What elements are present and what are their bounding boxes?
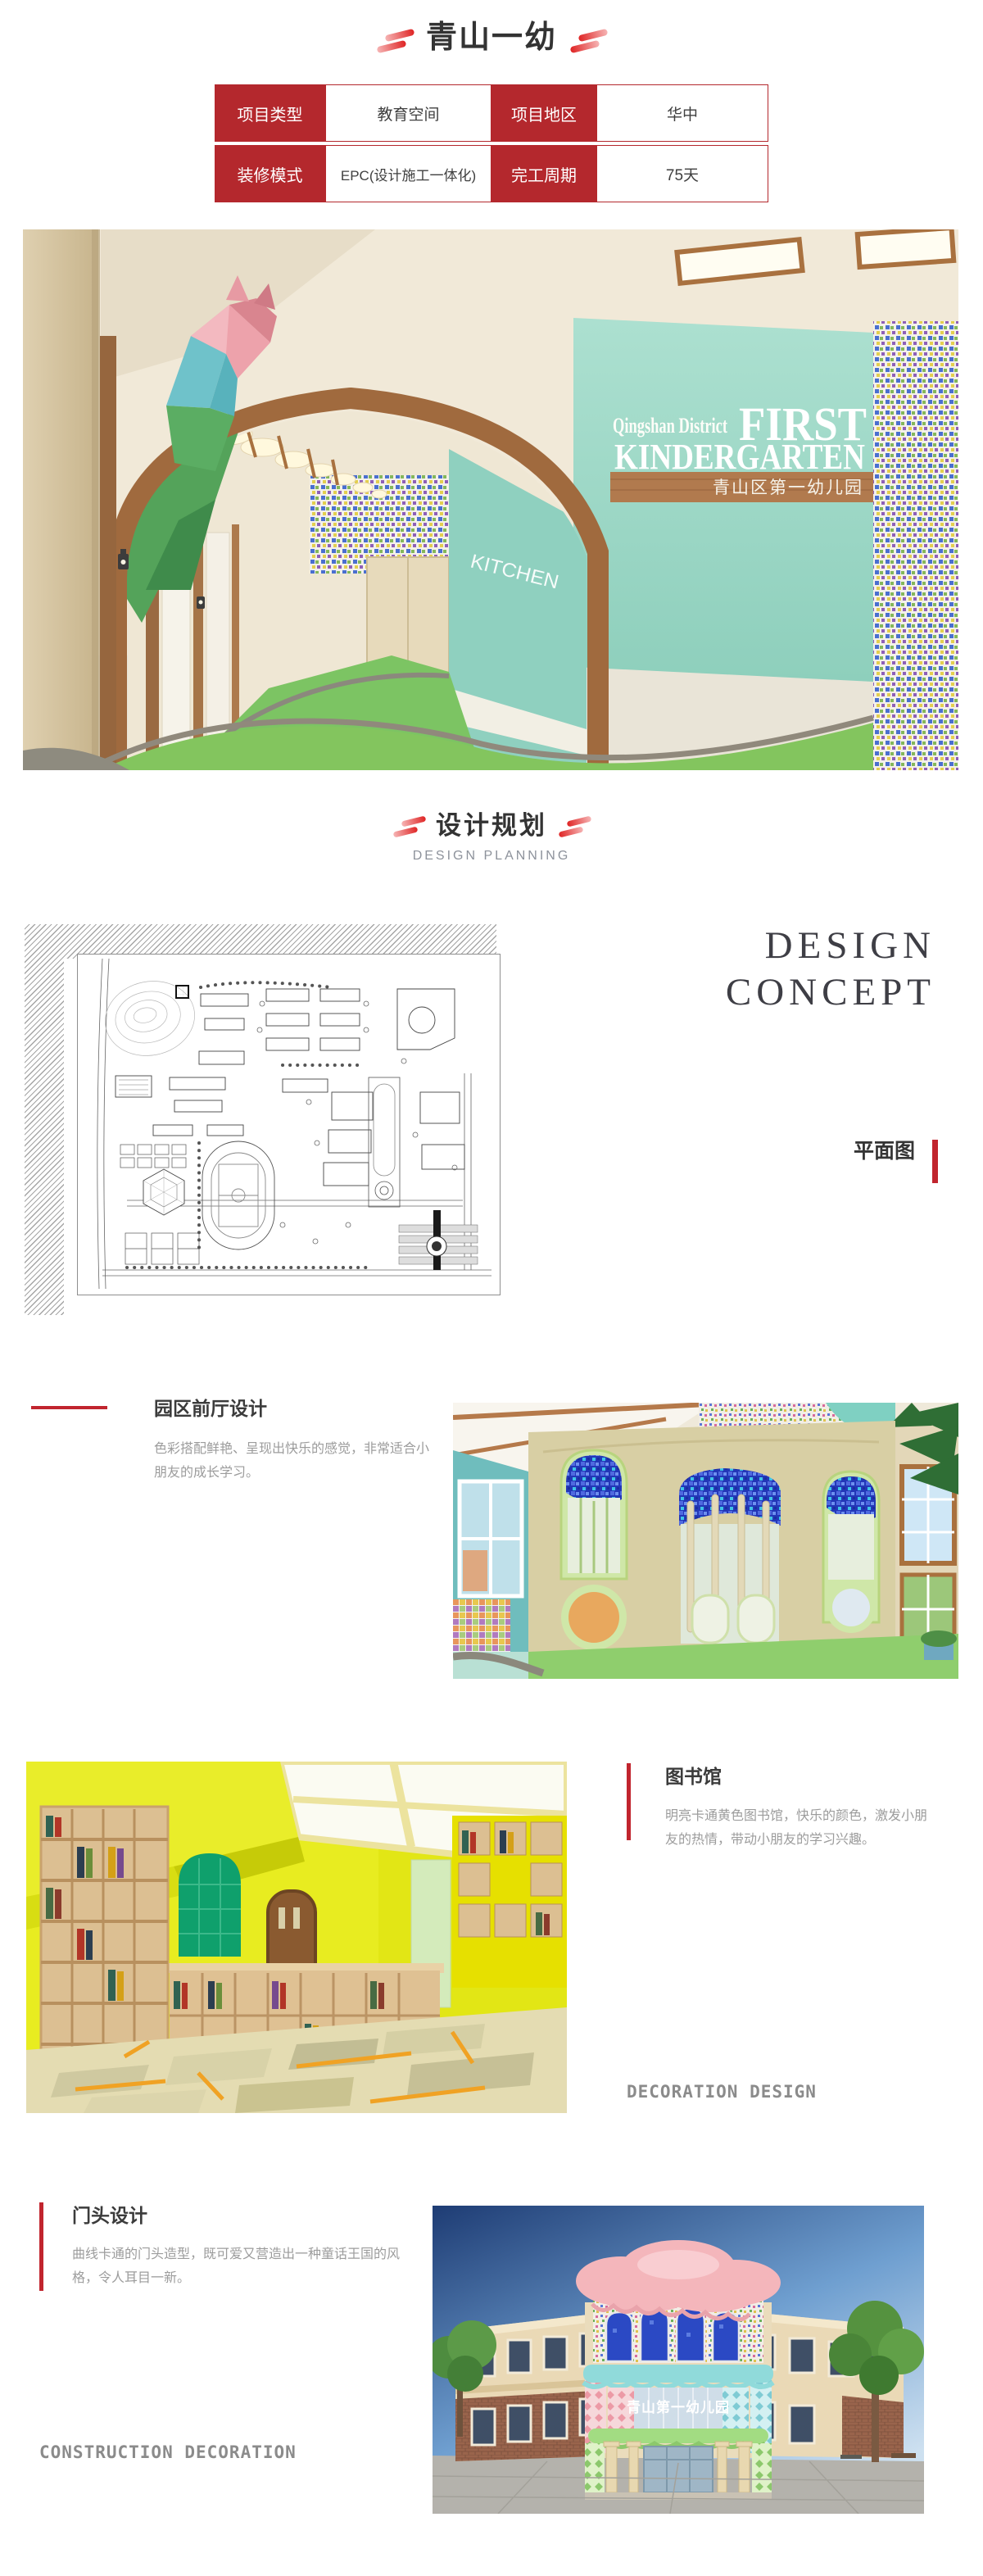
facade-illustration: 青山第一幼儿园	[433, 2206, 924, 2514]
concept-heading: DESIGN CONCEPT	[726, 923, 935, 1016]
planning-title: 设计规划	[436, 805, 547, 841]
plan-label-row: 平面图	[854, 1140, 938, 1183]
hero-corridor-photo: Qingshan District FIRST KINDERGARTEN 青山区…	[23, 229, 958, 770]
library-section-title: 图书馆	[665, 1761, 722, 1789]
site-plan-illustration	[78, 955, 500, 1295]
table-row: 装修模式 EPC(设计施工一体化) 完工周期 75天	[215, 145, 768, 202]
red-dash-icon	[562, 819, 587, 835]
library-section-description: 明亮卡通黄色图书馆，快乐的颜色，激发小朋友的热情，带动小朋友的学习兴趣。	[665, 1804, 935, 1852]
planning-header: 设计规划	[0, 805, 983, 841]
red-dash-icon	[380, 32, 410, 50]
wall-text-district: Qingshan District	[613, 414, 727, 438]
page-header: 青山一幼	[0, 20, 983, 56]
cell-duration-label: 完工周期	[491, 145, 596, 202]
project-info-table: 项目类型 教育空间 项目地区 华中 装修模式 EPC(设计施工一体化) 完工周期…	[215, 84, 768, 206]
page-title: 青山一幼	[426, 20, 557, 56]
wall-text-kindergarten: KINDERGARTEN	[614, 437, 865, 477]
hero-corridor-illustration: Qingshan District FIRST KINDERGARTEN 青山区…	[23, 229, 958, 770]
board-text: 青山区第一幼儿园	[713, 478, 863, 497]
lobby-section-description: 色彩搭配鲜艳、呈现出快乐的感觉，非常适合小朋友的成长学习。	[154, 1437, 439, 1485]
cell-duration-value: 75天	[596, 145, 768, 202]
library-photo	[26, 1762, 567, 2113]
red-bar-icon	[39, 2202, 43, 2291]
wall-cubbies	[452, 1816, 567, 1988]
red-dash-icon	[396, 819, 421, 835]
stone-column	[23, 229, 98, 770]
library-illustration	[26, 1762, 567, 2113]
cell-project-type-value: 教育空间	[325, 84, 491, 142]
planning-subtitle: DESIGN PLANNING	[0, 849, 983, 864]
lobby-illustration	[453, 1403, 958, 1679]
project-page: 青山一幼 项目类型 教育空间 项目地区 华中 装修模式 EPC(设计施工一体化)…	[0, 0, 983, 2576]
cell-region-value: 华中	[596, 84, 768, 142]
facade-section-description: 曲线卡通的门头造型，既可爱又营造出一种童话王国的风格，令人耳目一新。	[72, 2243, 408, 2290]
cell-mode-value: EPC(设计施工一体化)	[325, 145, 491, 202]
facade-photo: 青山第一幼儿园	[433, 2206, 924, 2514]
lobby-photo	[453, 1403, 958, 1679]
mosaic-wall	[873, 321, 958, 770]
cell-project-type-label: 项目类型	[215, 84, 325, 142]
construction-decoration-caption: CONSTRUCTION DECORATION	[39, 2442, 297, 2462]
facade-section-title: 门头设计	[72, 2200, 147, 2228]
concept-heading-line2: CONCEPT	[726, 969, 935, 1016]
decoration-design-caption: DECORATION DESIGN	[627, 2082, 817, 2102]
red-bar-icon	[627, 1763, 631, 1840]
plan-label: 平面图	[854, 1140, 915, 1163]
red-bar-icon	[932, 1140, 938, 1183]
red-line-icon	[31, 1406, 107, 1409]
building-sign: 青山第一幼儿园	[627, 2399, 730, 2415]
cell-region-label: 项目地区	[491, 84, 596, 142]
red-dash-icon	[573, 32, 603, 50]
hatch-decoration-left	[25, 924, 64, 1315]
concept-heading-line1: DESIGN	[726, 923, 935, 969]
table-row: 项目类型 教育空间 项目地区 华中	[215, 84, 768, 142]
lobby-section-title: 园区前厅设计	[154, 1393, 267, 1421]
cell-mode-label: 装修模式	[215, 145, 325, 202]
site-plan-drawing	[77, 954, 501, 1295]
